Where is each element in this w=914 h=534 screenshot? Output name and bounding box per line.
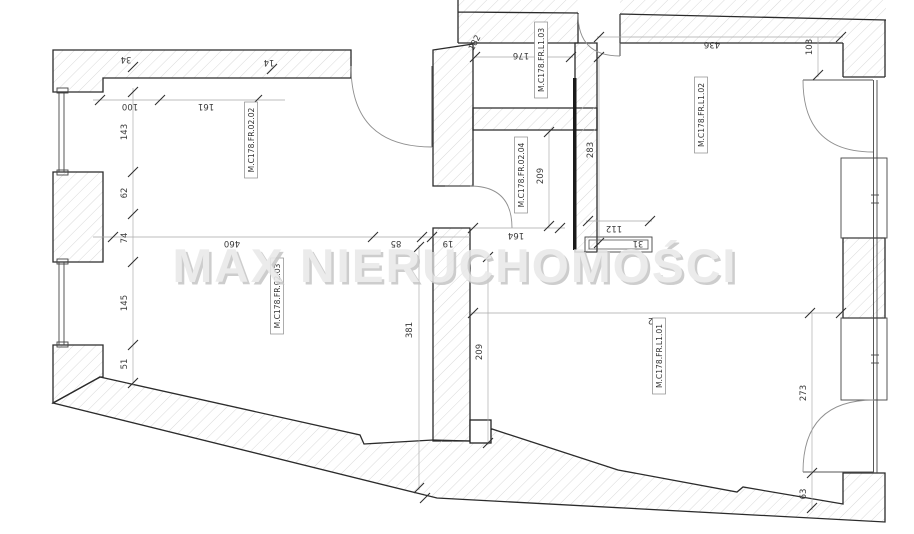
dim-62: 62 — [120, 188, 130, 199]
dim-273: 273 — [799, 385, 809, 401]
door-room0202 — [351, 66, 432, 147]
svg-text:M.C178.FR.L1.02: M.C178.FR.L1.02 — [697, 83, 706, 147]
dim-209a: 209 — [475, 344, 485, 360]
dim-436: 436 — [704, 39, 720, 49]
dim-176: 176 — [513, 50, 529, 60]
wall-left-pier-mid — [53, 172, 103, 262]
watermark-text: MAX NIERUCHOMOŚCI — [173, 239, 738, 292]
wall-right-pier — [843, 238, 885, 318]
dim-283: 283 — [586, 142, 596, 158]
watermark: MAX NIERUCHOMOŚCI MAX NIERUCHOMOŚCI — [173, 239, 741, 295]
svg-text:M.C178.FR.02.02: M.C178.FR.02.02 — [247, 107, 256, 172]
dim-381: 381 — [405, 322, 415, 338]
door-balcony-top — [803, 80, 873, 152]
dim-143: 143 — [120, 124, 130, 140]
dim-209b: 209 — [536, 168, 546, 184]
door-room0204 — [445, 186, 512, 228]
room-label-0204: M.C178.FR.02.04 — [515, 137, 528, 213]
svg-text:M.C178.FR.L1.01: M.C178.FR.L1.01 — [655, 324, 664, 388]
dim-145: 145 — [120, 295, 130, 311]
svg-text:M.C178.FR.02.04: M.C178.FR.02.04 — [517, 142, 526, 207]
dim-103: 103 — [805, 39, 815, 55]
window-right-1 — [841, 158, 887, 238]
dim-14: 14 — [264, 57, 275, 67]
room-label-l103: M.C178.FR.L1.03 — [535, 22, 548, 98]
room-label-l101: M.C178.FR.L1.01 — [653, 318, 666, 394]
dim-63: 63 — [799, 489, 809, 500]
shaft-wall-line — [573, 78, 577, 250]
dim-34: 34 — [121, 54, 132, 64]
wall-top-left — [53, 50, 351, 92]
wall-central-upper — [433, 44, 473, 186]
floor-plan-page: 34 14 100 161 143 62 74 145 51 460 85 19… — [0, 0, 914, 534]
room-label-l102: M.C178.FR.L1.02 — [695, 77, 708, 153]
window-left-1 — [57, 88, 68, 175]
door-balcony-bottom — [803, 400, 874, 472]
window-left-2 — [57, 259, 68, 347]
room-label-0202: M.C178.FR.02.02 — [245, 102, 258, 178]
dim-112: 112 — [606, 223, 622, 233]
window-right-2 — [841, 318, 887, 400]
dim-161: 161 — [198, 101, 214, 111]
dim-100: 100 — [122, 101, 138, 111]
svg-text:M.C178.FR.L1.03: M.C178.FR.L1.03 — [537, 28, 546, 92]
dim-51: 51 — [120, 359, 130, 370]
floor-plan-svg: 34 14 100 161 143 62 74 145 51 460 85 19… — [0, 0, 914, 534]
dim-74: 74 — [120, 233, 130, 244]
wall-top-right-mass — [458, 0, 886, 77]
